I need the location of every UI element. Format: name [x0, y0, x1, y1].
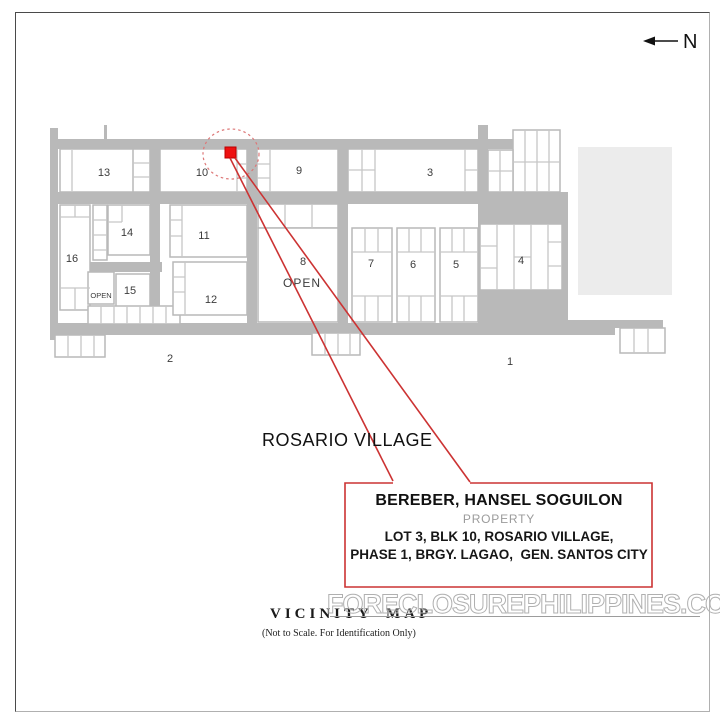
- block-7: [352, 228, 392, 322]
- block-5: [440, 228, 478, 322]
- block-label-5: 5: [453, 259, 459, 271]
- block-label-15: 15: [124, 285, 136, 297]
- block-6: [397, 228, 435, 322]
- village-name-label: ROSARIO VILLAGE: [262, 430, 442, 451]
- block-label-4: 4: [518, 255, 524, 267]
- owner-name: BEREBER, HANSEL SOGUILON: [375, 492, 622, 510]
- north-arrow: N: [643, 31, 697, 53]
- address-line-1: LOT 3, BLK 10, ROSARIO VILLAGE,: [385, 529, 614, 544]
- block-label-3: 3: [427, 167, 433, 179]
- block-label-9: 9: [296, 165, 302, 177]
- block-label-13: 13: [98, 167, 110, 179]
- lot-strip: [55, 335, 105, 357]
- open-label-courtyard: OPEN: [283, 276, 321, 290]
- block-8-open: [258, 228, 338, 322]
- block-label-7: 7: [368, 258, 374, 270]
- block-label-16: 16: [66, 253, 78, 265]
- block-label-12: 12: [205, 294, 217, 306]
- property-callout: BEREBER, HANSEL SOGUILON PROPERTY LOT 3,…: [346, 483, 652, 585]
- north-arrow-head: [643, 37, 655, 46]
- open-label-small: OPEN: [90, 291, 111, 300]
- caption-note: (Not to Scale. For Identification Only): [262, 628, 416, 639]
- lot-strip: [620, 328, 665, 353]
- block-label-10: 10: [196, 167, 208, 179]
- address-line-2: PHASE 1, BRGY. LAGAO, GEN. SANTOS CITY: [350, 547, 648, 562]
- block-label-1: 1: [507, 356, 513, 368]
- open-lot-area: [578, 147, 672, 295]
- block-label-11: 11: [198, 230, 209, 242]
- block-12: [173, 262, 247, 315]
- lot-strip: [133, 149, 150, 192]
- property-type-label: PROPERTY: [463, 512, 535, 526]
- vicinity-map-page: 13 10 9 3 16 14 11 12 15 8 7 6 5 4 2 1 O…: [0, 0, 720, 720]
- block-label-2: 2: [167, 353, 173, 365]
- lot-strip: [93, 205, 107, 260]
- block-label-8: 8: [300, 256, 306, 268]
- block-label-6: 6: [410, 259, 416, 271]
- watermark-underline: [330, 616, 700, 617]
- north-label: N: [683, 31, 697, 53]
- property-marker: [225, 147, 236, 158]
- block-label-14: 14: [121, 227, 133, 239]
